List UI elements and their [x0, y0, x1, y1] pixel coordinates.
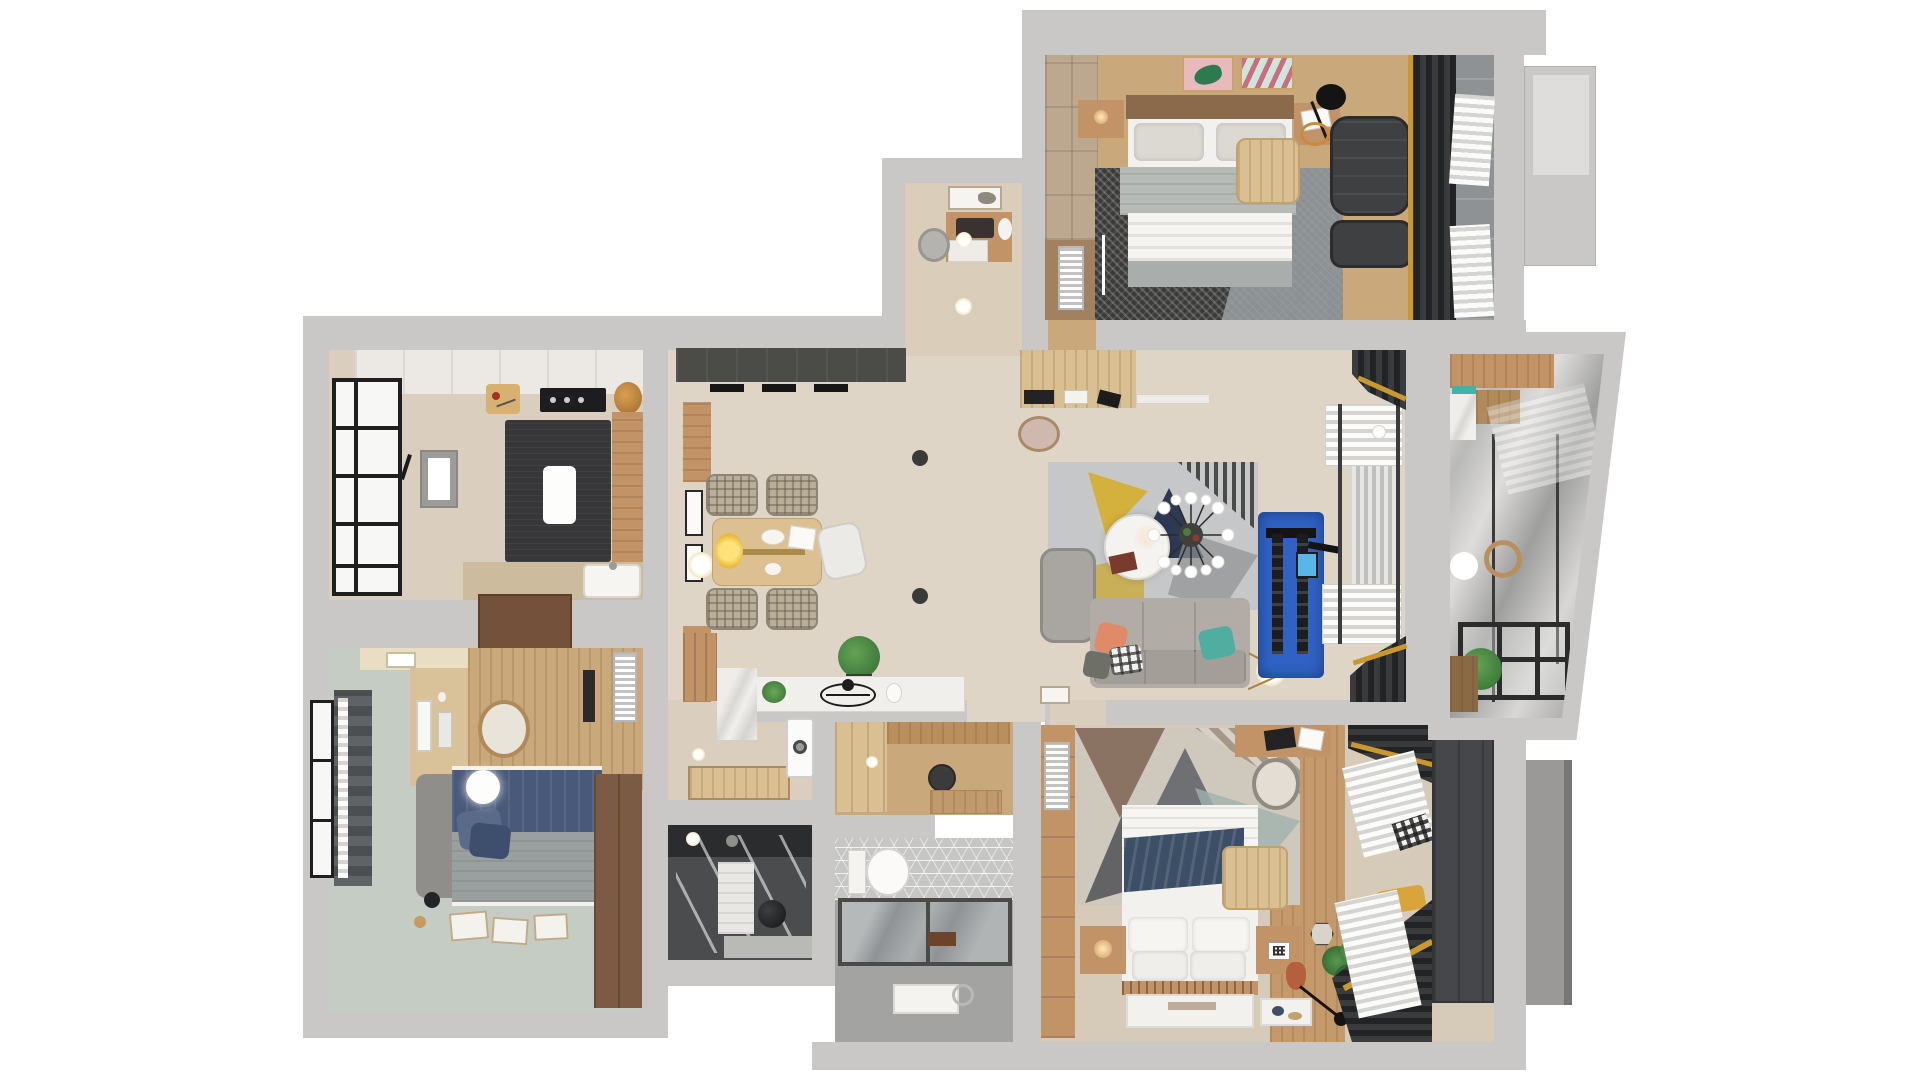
roman-shade-top	[1325, 404, 1403, 466]
glass-shower-enclosure	[838, 898, 1012, 966]
window-bar	[336, 564, 398, 568]
wall-art-pink	[1182, 56, 1234, 92]
wire-line	[826, 694, 870, 696]
marble-floor-patch	[717, 668, 757, 740]
bedroom3-nightstand-left	[1080, 926, 1126, 974]
wall-corridor-shower	[643, 800, 835, 825]
wall-top-left	[303, 316, 883, 350]
red-book	[1108, 551, 1137, 574]
lounge-chair	[1040, 548, 1096, 643]
flower-vase	[998, 218, 1012, 240]
bedroom2-dark-curtain	[334, 690, 372, 886]
bench-table	[1222, 846, 1288, 910]
ceiling-spot	[912, 450, 928, 466]
downlight	[956, 232, 972, 248]
sideboard	[745, 676, 965, 712]
wall-foyer-left	[812, 715, 835, 986]
foyer-wood-wall-band	[887, 722, 1010, 744]
window-bar	[336, 474, 398, 478]
sputnik-chandelier-icon	[1148, 492, 1234, 578]
pillow-gray	[1082, 650, 1112, 680]
bedroom2-shelf-boxes	[386, 652, 416, 668]
lamp-base	[414, 916, 426, 928]
wall-vanity-top	[882, 158, 1022, 183]
dining-chair	[766, 588, 818, 630]
bedroom3-desk-chair	[1252, 758, 1300, 810]
menu-card	[788, 525, 817, 550]
toilet-tank	[848, 850, 866, 894]
small-bowl	[765, 563, 781, 575]
marble-counter	[1450, 394, 1476, 440]
washer-door	[793, 740, 807, 754]
wall-master-right	[1494, 55, 1524, 350]
roman-shade-bottom	[1322, 584, 1402, 644]
round-mirror	[1484, 540, 1522, 578]
master-nightstand-left	[1078, 100, 1124, 138]
desk-black-item	[1097, 390, 1122, 409]
pillow	[1192, 917, 1250, 953]
sheer-curtain	[338, 698, 348, 878]
wall-left	[303, 316, 329, 1038]
cutting-board	[486, 384, 520, 414]
leaning-frame	[1040, 686, 1070, 704]
mat-motif	[1168, 1002, 1216, 1010]
qr-frame	[1268, 942, 1290, 960]
clothes-table	[1236, 138, 1300, 204]
dining-wall-frame	[685, 490, 703, 536]
bedroom3-dark-wardrobe	[1432, 725, 1494, 1003]
corridor-wardrobe	[683, 633, 717, 701]
bread	[614, 382, 642, 414]
wall-shelf-strip	[1136, 394, 1210, 404]
balcony	[1428, 332, 1626, 740]
dining-wall-sconce	[688, 552, 714, 578]
bedroom2-radiator	[613, 652, 637, 722]
wall-living-right	[1405, 350, 1428, 702]
bath-mat	[893, 984, 959, 1014]
balcony-cabinet-top	[1450, 354, 1554, 388]
island-light	[543, 466, 576, 524]
balcony-floor	[1450, 354, 1604, 718]
towel-column	[718, 862, 754, 934]
slat-headboard	[1122, 981, 1258, 995]
white-duvet	[1128, 213, 1292, 261]
bedroom2-window	[310, 700, 334, 878]
wall-foyer-bath	[835, 815, 935, 838]
bedroom3-radiator	[1044, 742, 1070, 810]
window-mullion	[354, 382, 358, 592]
sofa	[1090, 598, 1250, 688]
exterior-ac-ledge	[1524, 66, 1596, 266]
door-mat	[930, 790, 1002, 814]
wall-bottom-left	[303, 1012, 668, 1038]
burner-knob	[564, 397, 570, 403]
wall-bedroom3-left	[1013, 722, 1041, 1070]
pillow	[1128, 917, 1188, 953]
bedroom2-brown-wardrobe	[594, 774, 642, 1008]
master-dark-drapes	[1408, 55, 1456, 320]
window-frame-line	[1338, 404, 1342, 644]
wall-mid-column	[643, 340, 668, 1038]
dining-chair	[766, 474, 818, 516]
bedroom2-floor-lamp	[424, 892, 440, 908]
faucet-icon	[609, 562, 617, 570]
vanity-wall-art	[948, 186, 1002, 210]
kitchen-open-door	[478, 594, 572, 656]
wall-master-top	[1022, 10, 1546, 55]
wood-headboard	[1126, 95, 1294, 119]
window-bar	[336, 522, 398, 526]
mat-item-tan	[1288, 1012, 1302, 1020]
foyer-downlight	[866, 756, 878, 768]
mat-item-dark	[1272, 1006, 1284, 1016]
wall-bottom-right	[812, 1042, 1526, 1070]
desk-laptop	[1264, 727, 1296, 751]
window-bar	[313, 819, 331, 822]
bench-stool	[1018, 416, 1060, 452]
bedroom3-wall-desk	[1235, 725, 1331, 757]
table-lamp	[1094, 110, 1108, 124]
wire-knob	[842, 679, 854, 691]
tv-screen	[428, 458, 450, 500]
kitchen-window	[332, 378, 402, 596]
sofa-seam	[1194, 602, 1196, 652]
plant-foliage	[838, 636, 880, 678]
vanity-pouf	[918, 228, 950, 262]
knife-icon	[496, 399, 515, 408]
downlight	[692, 748, 705, 761]
charcoal-beam	[676, 348, 906, 382]
machine-screen	[1296, 552, 1318, 578]
ceiling-spot	[912, 588, 928, 604]
shower-downlight	[686, 832, 700, 846]
washing-machine	[786, 718, 814, 778]
machine-column	[1272, 534, 1283, 654]
desk-laptop	[1024, 390, 1054, 404]
pillow	[1132, 951, 1188, 981]
headboard	[416, 774, 454, 898]
keyboard	[438, 712, 452, 748]
window-bar	[313, 759, 331, 762]
cooktop	[540, 388, 606, 412]
terracotta-vase	[1286, 962, 1306, 990]
window-bar	[336, 426, 398, 430]
food-items	[492, 392, 500, 400]
master-sheer-curtain	[1450, 224, 1495, 318]
dining-table	[712, 518, 822, 586]
pillow	[468, 822, 511, 860]
kitchen-tall-cabinet	[612, 412, 643, 564]
shade-pull	[1372, 425, 1386, 439]
wall-master-left	[1022, 10, 1045, 356]
balcony-cabinet-bottom	[1450, 656, 1478, 712]
lantern-lamp	[1094, 940, 1112, 958]
toilet-bowl	[866, 848, 910, 896]
ac-panel	[583, 670, 595, 722]
wall-vanity-left	[882, 158, 905, 356]
floor-paper	[491, 917, 529, 945]
exterior-utility-box	[1526, 760, 1572, 1005]
armchair-ottoman	[1330, 220, 1412, 268]
burner-knob	[550, 397, 556, 403]
floor-paper	[449, 910, 489, 941]
sofa-seam	[1142, 602, 1144, 652]
arc-lamp-head	[1316, 84, 1346, 110]
hallway-floor	[967, 700, 1045, 722]
pillow	[1190, 951, 1246, 981]
soap-shelf	[928, 932, 956, 946]
master-wardrobe-column	[1045, 55, 1098, 240]
dining-chair	[706, 474, 758, 516]
dining-chair	[706, 588, 758, 630]
master-sheer-curtain	[1449, 94, 1495, 187]
bed-foot	[1128, 261, 1292, 287]
foyer-wardrobe	[835, 722, 887, 812]
master-door-opening	[1048, 320, 1096, 350]
recliner-armchair	[1330, 116, 1410, 216]
track-light	[814, 384, 848, 392]
window-frame-line	[1396, 404, 1400, 644]
mouse	[438, 692, 446, 702]
bedroom2-desk-chair	[478, 700, 530, 758]
white-stool-light	[1450, 552, 1478, 580]
desk-paper	[1297, 727, 1324, 751]
yellow-flowers	[715, 533, 743, 569]
pillow-plaid	[1108, 644, 1144, 676]
plate	[761, 529, 785, 545]
wire-sculpture-icon	[820, 683, 876, 707]
master-door-leaf	[1102, 235, 1105, 295]
teal-accent	[1452, 386, 1476, 394]
desk-books	[1064, 390, 1088, 404]
wall-art-mint	[1240, 56, 1294, 90]
track-light	[762, 384, 796, 392]
ac-ledge-top	[1533, 75, 1589, 175]
white-vase	[886, 683, 902, 703]
bedroom2-bed	[416, 766, 602, 906]
wood-runner	[688, 766, 790, 800]
white-mat	[1126, 994, 1254, 1028]
floor-plan-canvas	[0, 0, 1920, 1080]
track-light	[710, 384, 744, 392]
white-mat-small	[1260, 998, 1312, 1026]
wall-bedroom3-right	[1494, 722, 1526, 1070]
floor-paper	[533, 913, 568, 941]
downlight	[955, 298, 972, 315]
gold-curtain-line	[1408, 55, 1413, 320]
wall-shower-bottom	[643, 960, 835, 986]
black-sphere-stool	[758, 900, 786, 928]
window-blinds	[1352, 466, 1398, 584]
kitchen-island	[505, 420, 611, 562]
kitchen-wall-tv-mirror	[420, 450, 458, 508]
burner-knob	[578, 397, 584, 403]
shower-hose	[952, 984, 974, 1006]
shower-step	[724, 936, 812, 958]
art-plant-motif	[1192, 63, 1224, 88]
arc-lamp-base	[1300, 122, 1330, 146]
dining-wood-strip	[683, 402, 711, 482]
living-wall-desk	[1020, 350, 1136, 408]
art-smudge	[978, 192, 996, 204]
monitor	[416, 700, 432, 752]
round-stool	[928, 764, 956, 792]
bedroom2-pendant-lamp	[466, 770, 500, 804]
pillow	[1134, 123, 1204, 161]
kitchen-sink	[583, 564, 641, 598]
master-radiator	[1058, 246, 1084, 310]
sideboard-plant	[762, 681, 786, 703]
